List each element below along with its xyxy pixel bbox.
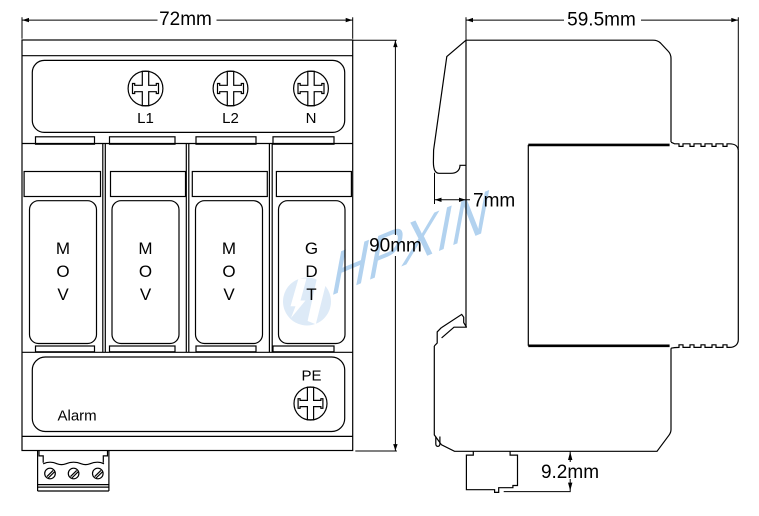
svg-text:PE: PE <box>301 368 321 385</box>
svg-text:D: D <box>305 262 317 281</box>
svg-text:M: M <box>222 239 236 258</box>
svg-text:L1: L1 <box>137 110 154 127</box>
svg-text:M: M <box>138 239 152 258</box>
svg-text:T: T <box>306 285 316 304</box>
svg-text:M: M <box>56 239 70 258</box>
svg-text:N: N <box>306 110 317 127</box>
svg-text:59.5mm: 59.5mm <box>567 10 636 31</box>
svg-text:G: G <box>305 239 318 258</box>
svg-text:O: O <box>56 262 69 281</box>
svg-text:O: O <box>139 262 152 281</box>
svg-text:L2: L2 <box>222 110 239 127</box>
svg-text:9.2mm: 9.2mm <box>541 462 599 483</box>
svg-text:Alarm: Alarm <box>58 408 97 425</box>
svg-text:7mm: 7mm <box>473 190 515 211</box>
svg-text:V: V <box>140 285 152 304</box>
svg-text:V: V <box>57 285 69 304</box>
svg-text:O: O <box>222 262 235 281</box>
svg-text:72mm: 72mm <box>159 9 212 30</box>
svg-text:90mm: 90mm <box>369 236 422 257</box>
svg-text:V: V <box>223 285 235 304</box>
